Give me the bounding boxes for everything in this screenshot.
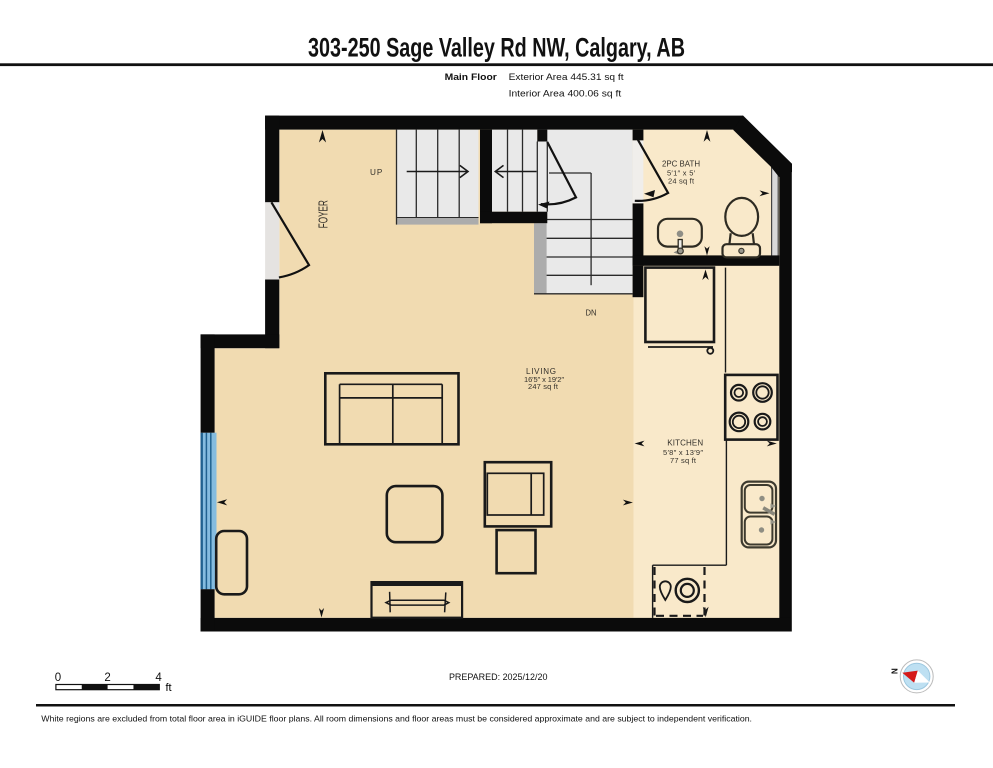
svg-text:ft: ft — [166, 682, 172, 694]
svg-text:UP: UP — [370, 168, 383, 177]
svg-text:PREPARED: 2025/12/20: PREPARED: 2025/12/20 — [449, 672, 548, 682]
svg-text:Exterior Area 445.31 sq ft: Exterior Area 445.31 sq ft — [509, 72, 624, 83]
svg-text:DN: DN — [586, 308, 597, 317]
svg-text:4: 4 — [155, 672, 162, 684]
svg-text:N: N — [890, 668, 899, 674]
svg-text:White regions are excluded fro: White regions are excluded from total fl… — [41, 714, 752, 724]
svg-text:Interior Area 400.06 sq ft: Interior Area 400.06 sq ft — [509, 89, 622, 100]
svg-text:2: 2 — [104, 672, 110, 684]
svg-text:24 sq ft: 24 sq ft — [668, 176, 695, 185]
svg-text:2PC BATH: 2PC BATH — [662, 160, 700, 169]
svg-text:FOYER: FOYER — [316, 200, 331, 228]
svg-text:303-250 Sage Valley Rd NW, Cal: 303-250 Sage Valley Rd NW, Calgary, AB — [308, 33, 685, 63]
svg-text:Main Floor: Main Floor — [445, 72, 498, 82]
svg-text:77 sq ft: 77 sq ft — [670, 456, 697, 465]
svg-text:0: 0 — [55, 672, 61, 684]
svg-text:247 sq ft: 247 sq ft — [528, 382, 559, 391]
svg-text:KITCHEN: KITCHEN — [667, 439, 703, 448]
